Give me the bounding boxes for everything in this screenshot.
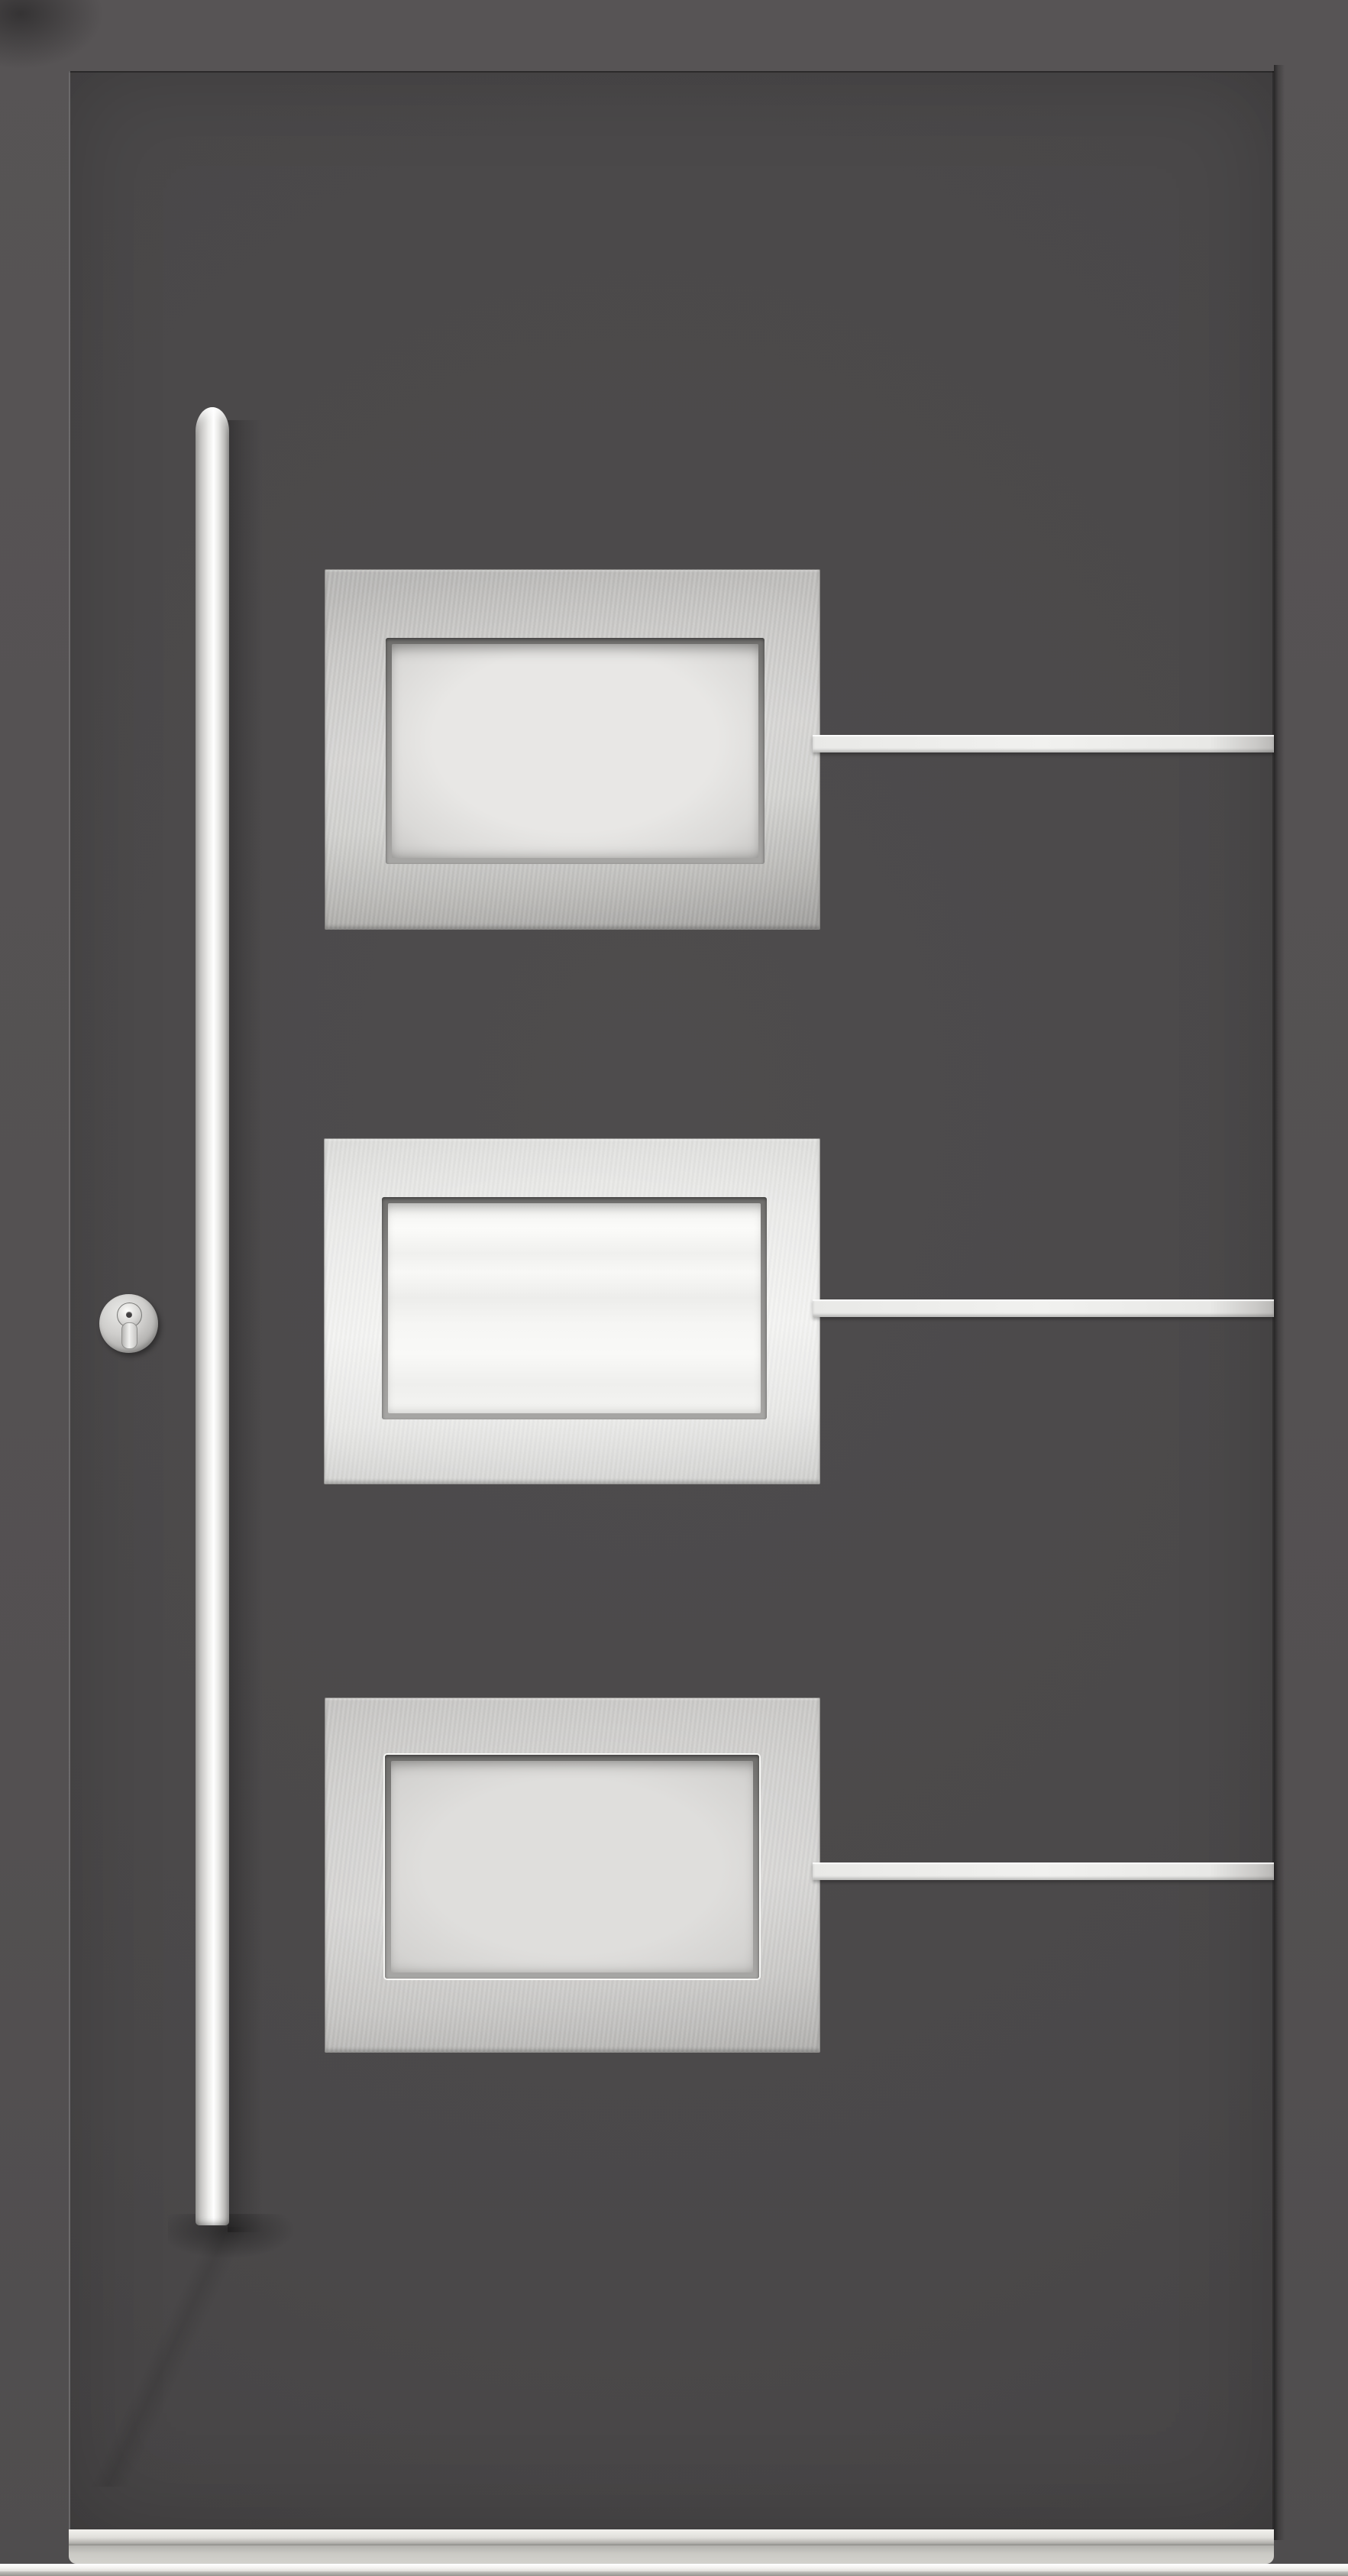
lock-keyway-icon [126, 1312, 132, 1318]
corner-shadow-artifact [0, 0, 115, 76]
glazing-panel-top-glass [392, 644, 758, 858]
sill-base [0, 2571, 1348, 2576]
glazing-panel-top-bezel [386, 638, 765, 864]
glazing-panel-bottom-glass [391, 1761, 753, 1972]
pull-handle-bar [196, 407, 229, 2225]
decor-strip-middle [813, 1299, 1274, 1317]
glazing-panel-middle-glass [388, 1203, 761, 1413]
door-leaf-right-gap [1274, 65, 1285, 2540]
door-lock [99, 1294, 158, 1353]
entrance-door-photo [0, 0, 1348, 2576]
handle-diagonal-shadow [80, 2227, 256, 2487]
decor-strip-top [813, 735, 1274, 752]
threshold-top-face [69, 2529, 1274, 2545]
lock-cylinder-slot [121, 1322, 137, 1349]
glazing-panel-bottom-bezel [385, 1755, 759, 1979]
sill-strip [0, 2564, 1348, 2571]
handle-cast-shadow [228, 420, 263, 2232]
threshold-front-face [69, 2545, 1274, 2564]
decor-strip-bottom [813, 1862, 1274, 1880]
glazing-panel-middle-bezel [382, 1197, 767, 1419]
